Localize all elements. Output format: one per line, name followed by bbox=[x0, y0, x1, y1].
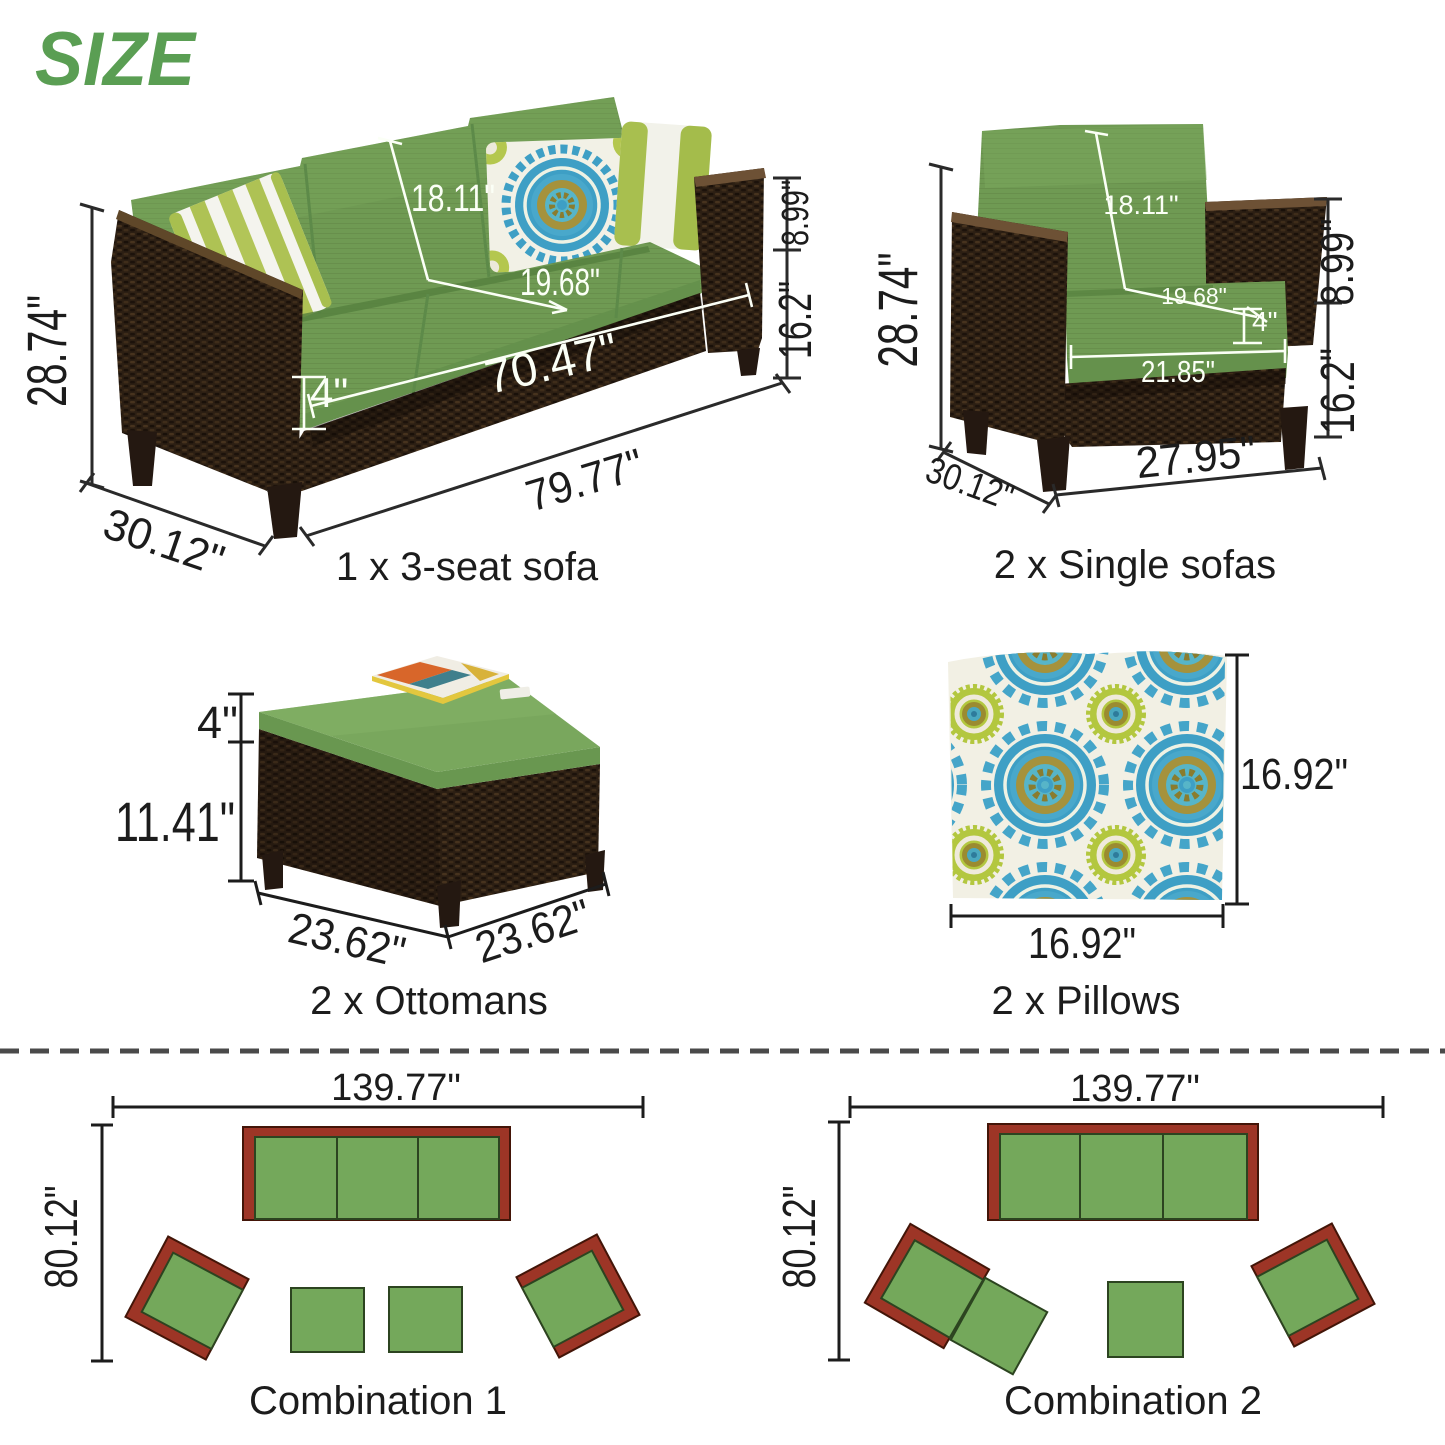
svg-text:16.92": 16.92" bbox=[1028, 919, 1136, 968]
svg-text:8.99": 8.99" bbox=[775, 180, 817, 246]
svg-text:80.12": 80.12" bbox=[35, 1186, 87, 1289]
svg-text:Combination 1: Combination 1 bbox=[249, 1379, 507, 1423]
svg-text:19.68": 19.68" bbox=[1161, 283, 1227, 309]
svg-text:28.74": 28.74" bbox=[15, 295, 78, 407]
svg-text:Combination 2: Combination 2 bbox=[1004, 1379, 1262, 1423]
svg-text:16.92": 16.92" bbox=[1240, 750, 1348, 799]
svg-text:1 x 3-seat sofa: 1 x 3-seat sofa bbox=[336, 545, 599, 589]
svg-text:SIZE: SIZE bbox=[35, 17, 197, 102]
svg-text:139.77": 139.77" bbox=[331, 1067, 461, 1109]
svg-text:21.85": 21.85" bbox=[1141, 354, 1215, 389]
svg-text:80.12": 80.12" bbox=[773, 1186, 825, 1289]
svg-text:2 x Ottomans: 2 x Ottomans bbox=[310, 979, 548, 1023]
svg-text:4": 4" bbox=[1252, 306, 1278, 337]
svg-text:139.77": 139.77" bbox=[1070, 1068, 1200, 1110]
svg-text:16.2": 16.2" bbox=[1312, 348, 1365, 434]
svg-text:4": 4" bbox=[310, 369, 348, 416]
svg-text:18.11": 18.11" bbox=[1103, 190, 1178, 220]
svg-text:2 x Pillows: 2 x Pillows bbox=[992, 979, 1181, 1023]
svg-text:8.99": 8.99" bbox=[1311, 219, 1363, 306]
svg-text:4": 4" bbox=[197, 697, 238, 748]
svg-text:11.41": 11.41" bbox=[115, 790, 235, 853]
svg-text:16.2": 16.2" bbox=[769, 281, 821, 359]
svg-text:2 x Single sofas: 2 x Single sofas bbox=[994, 543, 1276, 587]
svg-text:19.68": 19.68" bbox=[520, 262, 600, 304]
svg-text:18.11": 18.11" bbox=[411, 178, 495, 220]
svg-text:28.74": 28.74" bbox=[866, 253, 929, 368]
